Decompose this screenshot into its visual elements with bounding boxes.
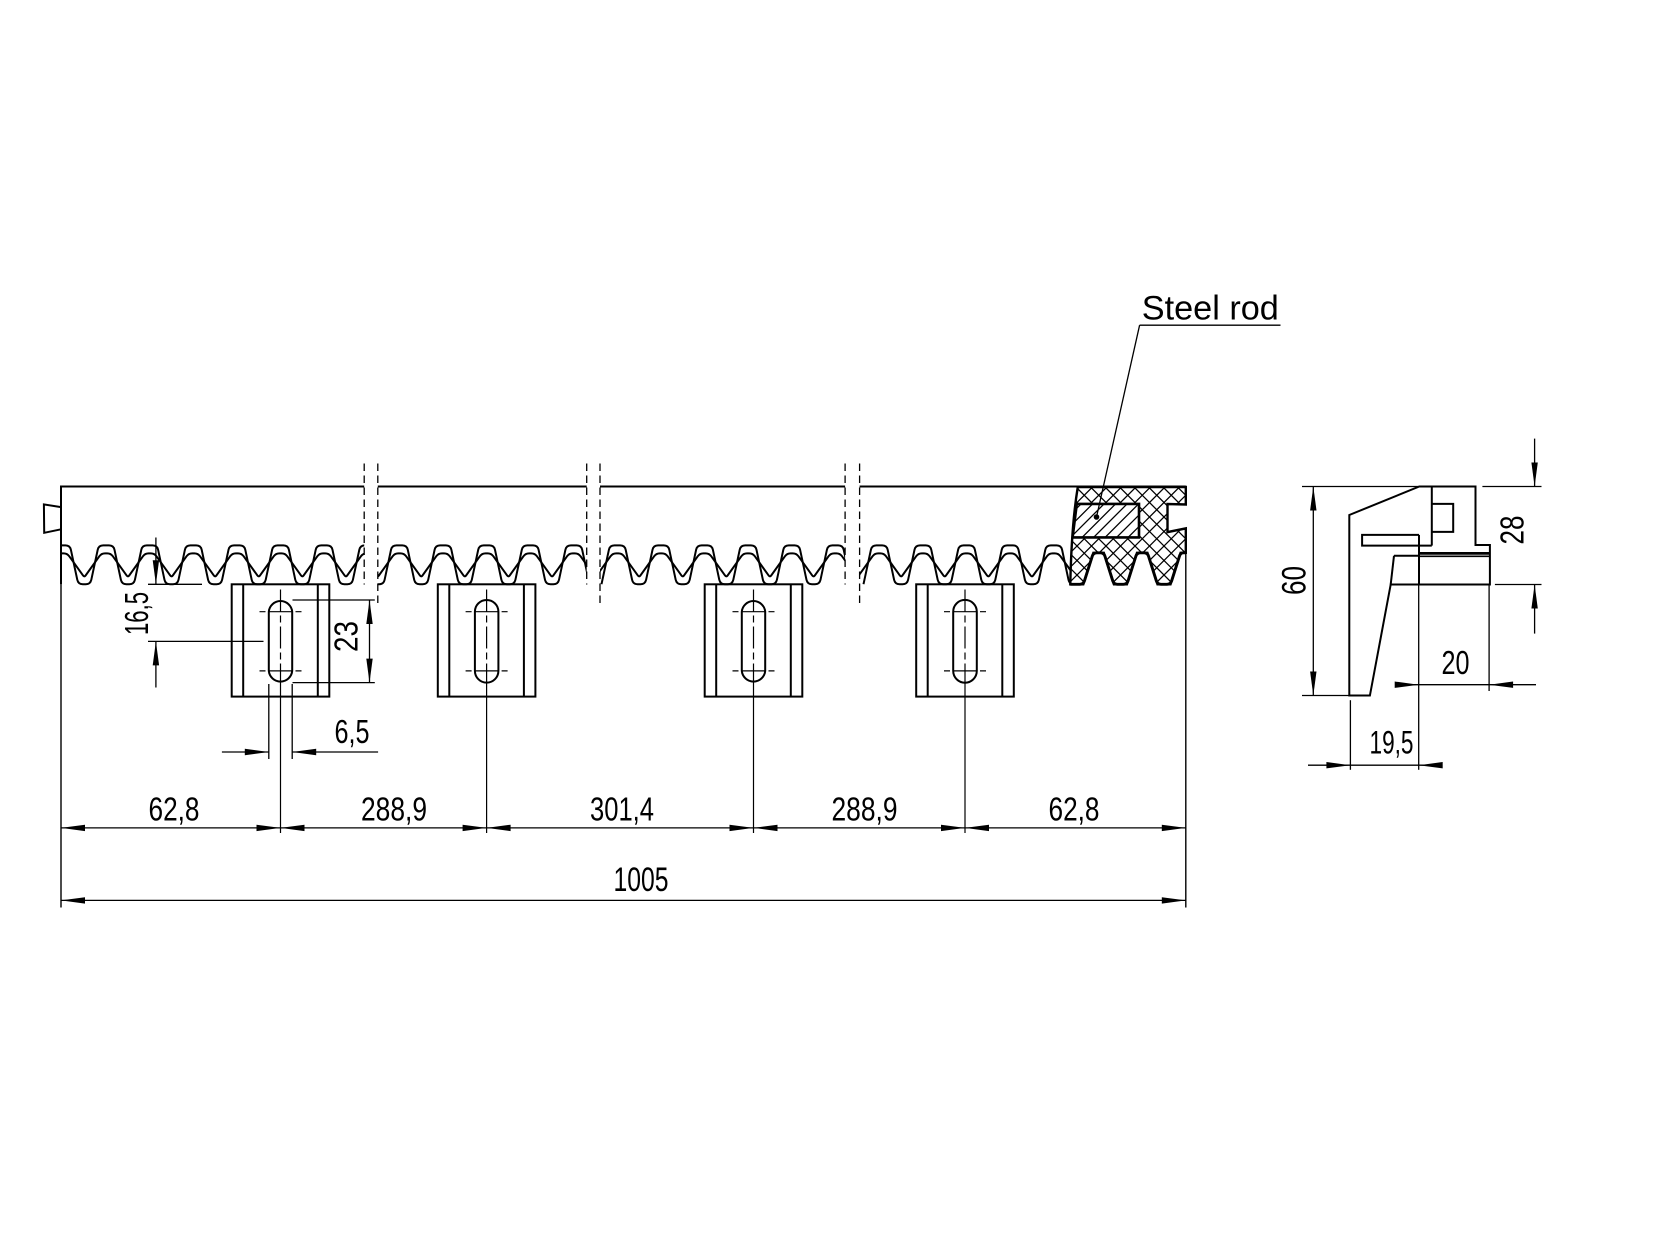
svg-text:301,4: 301,4 [590,791,654,828]
svg-text:16,5: 16,5 [118,592,155,635]
svg-text:6,5: 6,5 [335,713,370,750]
svg-text:23: 23 [328,621,365,652]
svg-text:62,8: 62,8 [149,791,200,828]
svg-text:28: 28 [1494,516,1531,545]
svg-text:1005: 1005 [614,861,669,899]
svg-text:60: 60 [1276,566,1314,595]
svg-text:288,9: 288,9 [832,791,898,828]
svg-text:19,5: 19,5 [1370,725,1414,761]
svg-text:20: 20 [1442,644,1470,681]
svg-text:Steel rod: Steel rod [1142,290,1279,328]
svg-text:288,9: 288,9 [361,791,427,828]
svg-text:62,8: 62,8 [1049,791,1100,828]
